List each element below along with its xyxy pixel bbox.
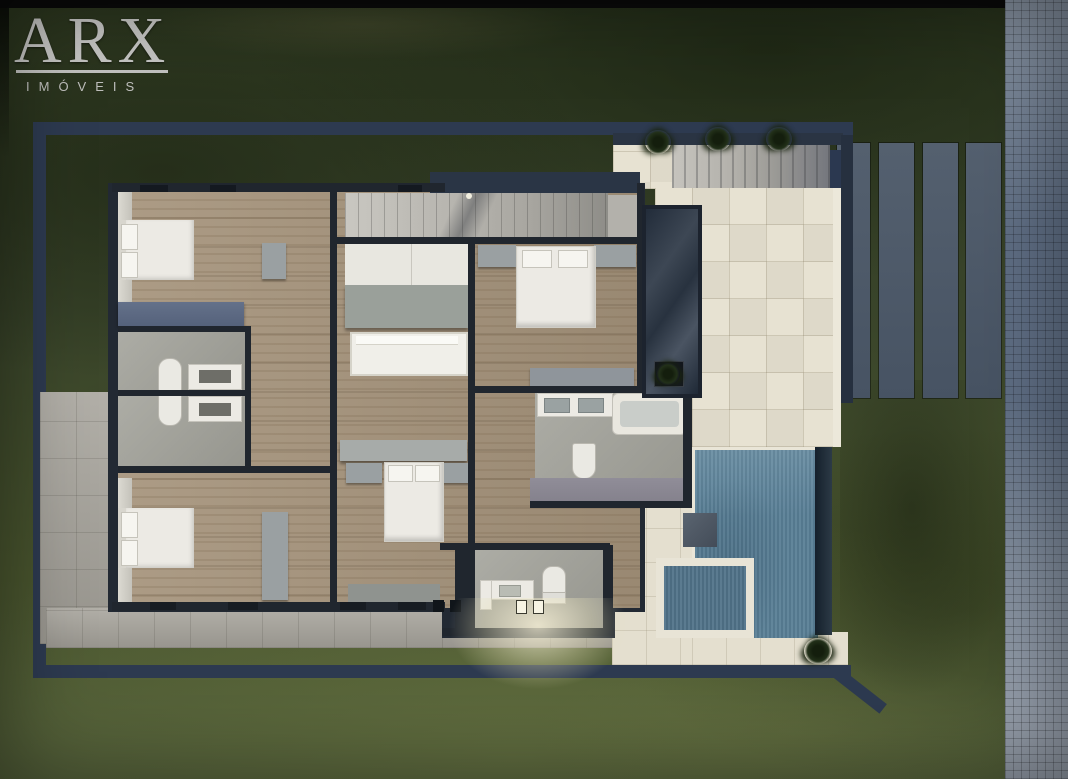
bedroom1-wardrobe	[118, 302, 244, 326]
deck-plant	[804, 638, 832, 664]
pool-infinity-edge	[815, 447, 832, 635]
window	[210, 185, 236, 192]
wall	[118, 326, 245, 332]
pool-ledge	[683, 513, 717, 547]
bedroom3-side-cabinet	[346, 463, 382, 483]
toilet	[158, 391, 182, 426]
bedroom4-side-cabinet	[478, 245, 516, 267]
bedroom2-bed	[118, 508, 194, 568]
driveway-slat	[966, 143, 1001, 398]
center-cabinet	[340, 440, 467, 461]
sink	[578, 398, 604, 413]
bedroom3-dresser	[348, 584, 440, 602]
left-dark-edge	[0, 8, 9, 158]
bedroom4-wardrobe	[530, 368, 634, 386]
sofa	[350, 332, 468, 376]
bedroom2-closet	[262, 512, 288, 600]
double-vanity	[537, 393, 613, 417]
vanity	[188, 364, 242, 390]
wall	[683, 390, 692, 504]
sink	[199, 370, 231, 383]
sofa-back	[356, 336, 458, 345]
wall	[530, 501, 692, 508]
wall	[118, 390, 245, 396]
bed-pillow	[388, 465, 413, 482]
toilet	[572, 443, 596, 479]
window	[228, 602, 258, 610]
entry-plant	[645, 130, 671, 154]
toilet	[158, 358, 182, 392]
spa	[656, 558, 754, 638]
door-mark	[433, 600, 444, 612]
toilet	[542, 566, 566, 594]
sink	[199, 403, 231, 416]
window	[398, 602, 426, 610]
patio-right-wall	[841, 135, 853, 403]
side-walkway	[40, 392, 112, 644]
grass-patch	[840, 380, 1020, 700]
driveway-slat	[923, 143, 958, 398]
entry-plant	[766, 127, 792, 151]
window	[140, 185, 168, 192]
watermark-logo: ARX IMÓVEIS	[14, 6, 204, 94]
center-unit-gray	[345, 285, 468, 328]
sink	[499, 585, 521, 597]
center-unit-white	[345, 243, 468, 286]
entry-plant	[705, 127, 731, 151]
sink	[544, 398, 570, 413]
ensuite-closet-bar	[530, 478, 685, 503]
bathtub	[612, 393, 687, 435]
wall	[245, 326, 251, 472]
bedroom3-bed	[384, 462, 442, 540]
unit-seam	[411, 243, 412, 285]
bedroom4-side-cabinet	[594, 245, 636, 267]
bed-pillow	[522, 250, 552, 268]
brand-name: ARX	[14, 6, 204, 76]
corridor-plant	[656, 363, 680, 385]
bed-pillow	[121, 252, 138, 278]
entry-light-dot	[466, 193, 472, 199]
patio-edge-strip	[833, 188, 841, 447]
vanity	[188, 396, 242, 422]
lot-wall-bottom	[33, 665, 851, 678]
wall-light	[533, 600, 544, 614]
road	[1005, 0, 1068, 779]
glass-corridor	[642, 205, 702, 398]
bed-pillow	[121, 224, 138, 250]
bathtub-basin	[620, 401, 679, 427]
bed-pillow	[121, 512, 138, 538]
wall	[118, 466, 331, 473]
bed-pillow	[558, 250, 588, 268]
wall	[337, 237, 644, 244]
brand-subtitle: IMÓVEIS	[26, 79, 204, 94]
wall-light	[516, 600, 527, 614]
stair-landing	[608, 195, 638, 239]
entry-hall-band	[430, 172, 640, 193]
wall	[330, 190, 337, 608]
floor-plan-render: ARX IMÓVEIS	[0, 0, 1068, 779]
grass-patch	[150, 0, 580, 60]
bed-pillow	[415, 465, 440, 482]
bed-pillow	[121, 540, 138, 566]
window	[340, 602, 366, 610]
entry-steps	[672, 145, 830, 189]
bedroom3-side-cabinet	[442, 463, 470, 483]
window	[150, 602, 176, 610]
bedroom4-bed	[516, 246, 594, 326]
driveway-slat	[879, 143, 914, 398]
bedroom1-bed	[118, 220, 194, 280]
window	[398, 185, 422, 192]
bedroom1-closet	[262, 243, 286, 279]
staircase	[345, 193, 608, 238]
